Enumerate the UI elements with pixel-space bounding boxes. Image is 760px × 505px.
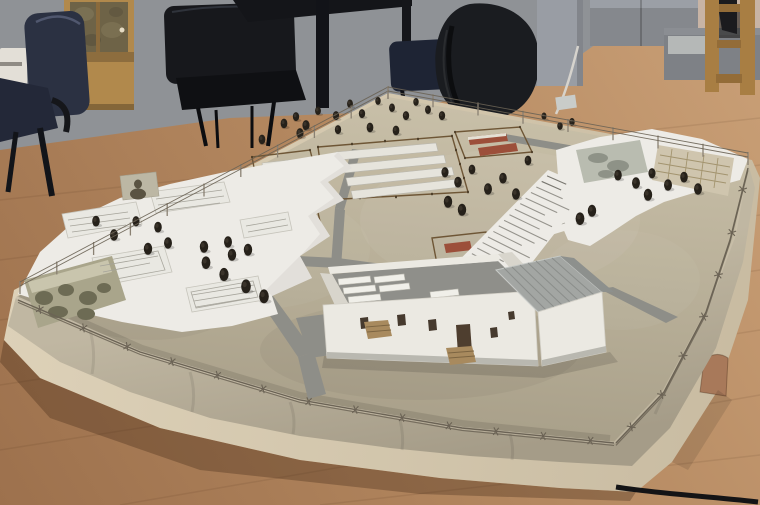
cabinet-knob (120, 28, 125, 33)
floor-box (555, 95, 577, 111)
wooden-frame (705, 0, 755, 95)
wall-pillar (537, 0, 583, 86)
photo-canvas (0, 0, 760, 505)
photo-stage: Photograph of a museum scale model of a … (0, 0, 760, 505)
backpack (435, 3, 539, 118)
